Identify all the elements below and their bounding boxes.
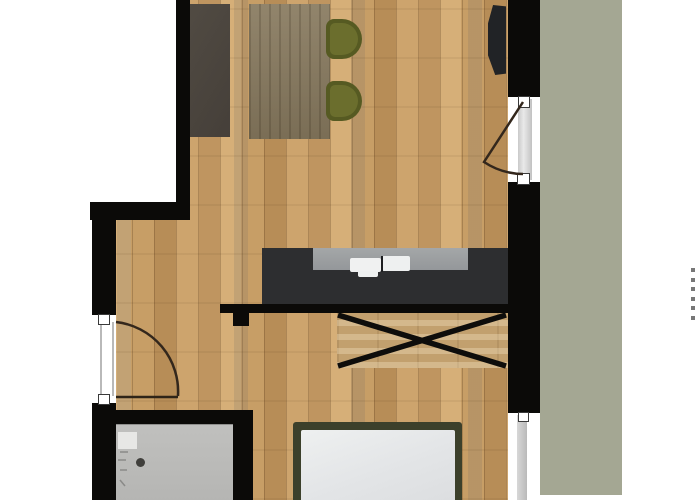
wall-step — [90, 202, 190, 220]
window-knob-icon — [518, 412, 529, 422]
wall-left-top — [176, 0, 190, 220]
wall-bathroom-right — [233, 410, 253, 500]
door-hinge-icon — [518, 96, 530, 108]
floor-plan — [0, 0, 700, 500]
wall-kitchen-divider — [220, 304, 508, 313]
wall-right-top — [508, 0, 540, 97]
sink-divider — [381, 256, 383, 272]
balcony-area — [540, 0, 622, 495]
cropped-edge-marks — [691, 268, 697, 320]
wall-left-mid — [92, 219, 116, 315]
door-hinge-icon — [98, 314, 110, 325]
mattress — [301, 430, 455, 500]
wall-right-mid — [508, 182, 540, 413]
door-hinge-icon — [98, 394, 110, 405]
dining-chair-seat — [330, 23, 358, 55]
sink-basin-right — [382, 256, 410, 271]
door-hinge-icon — [517, 173, 530, 185]
sink-basin-left — [350, 258, 381, 272]
dining-table — [249, 4, 330, 139]
wall-left-bottom — [92, 403, 116, 500]
window-frame — [517, 415, 527, 500]
sideboard — [188, 4, 230, 137]
dining-chair-seat — [330, 85, 358, 117]
crossed-storage-unit — [337, 313, 508, 368]
entrance-door-jamb-line — [112, 322, 114, 396]
floor-drain — [136, 458, 145, 467]
shower-tray — [118, 432, 137, 449]
balcony-door-leaf — [518, 99, 532, 180]
wall-stub — [233, 313, 249, 326]
sink-basin-lip — [358, 271, 378, 277]
entrance-door-jamb-line — [100, 322, 102, 396]
